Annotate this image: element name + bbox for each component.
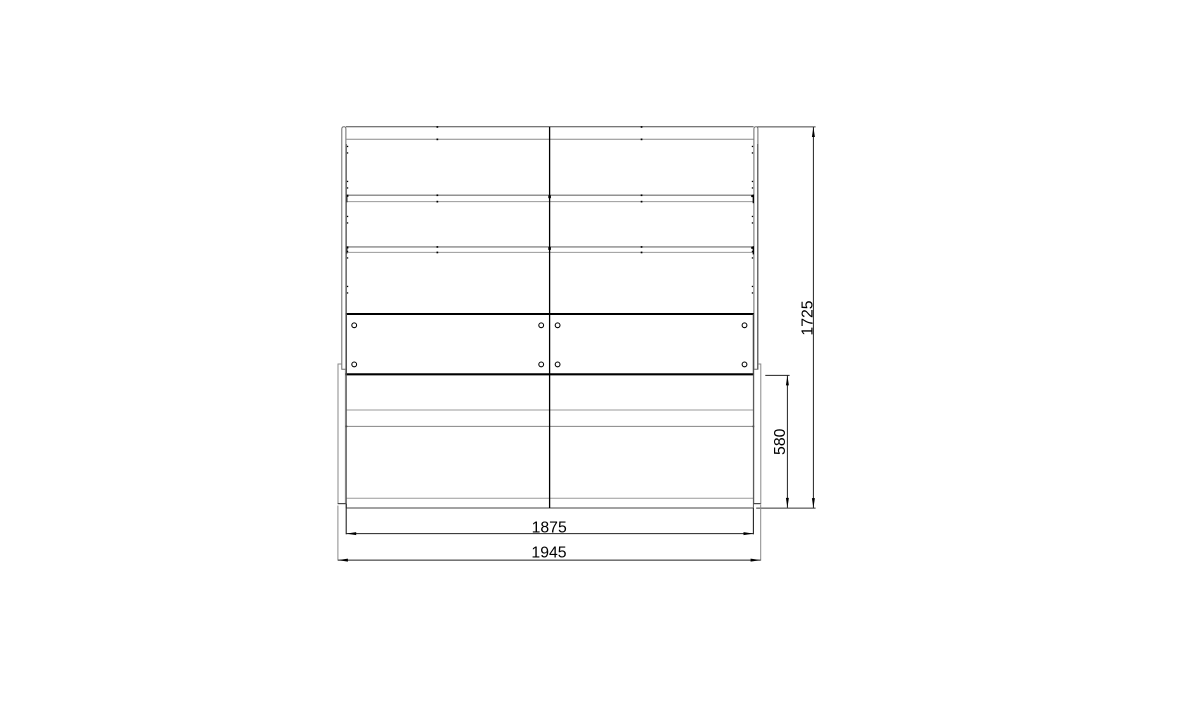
svg-text:580: 580	[772, 428, 789, 455]
svg-text:1945: 1945	[531, 545, 566, 562]
svg-text:1875: 1875	[532, 520, 567, 537]
svg-text:1725: 1725	[800, 300, 817, 335]
